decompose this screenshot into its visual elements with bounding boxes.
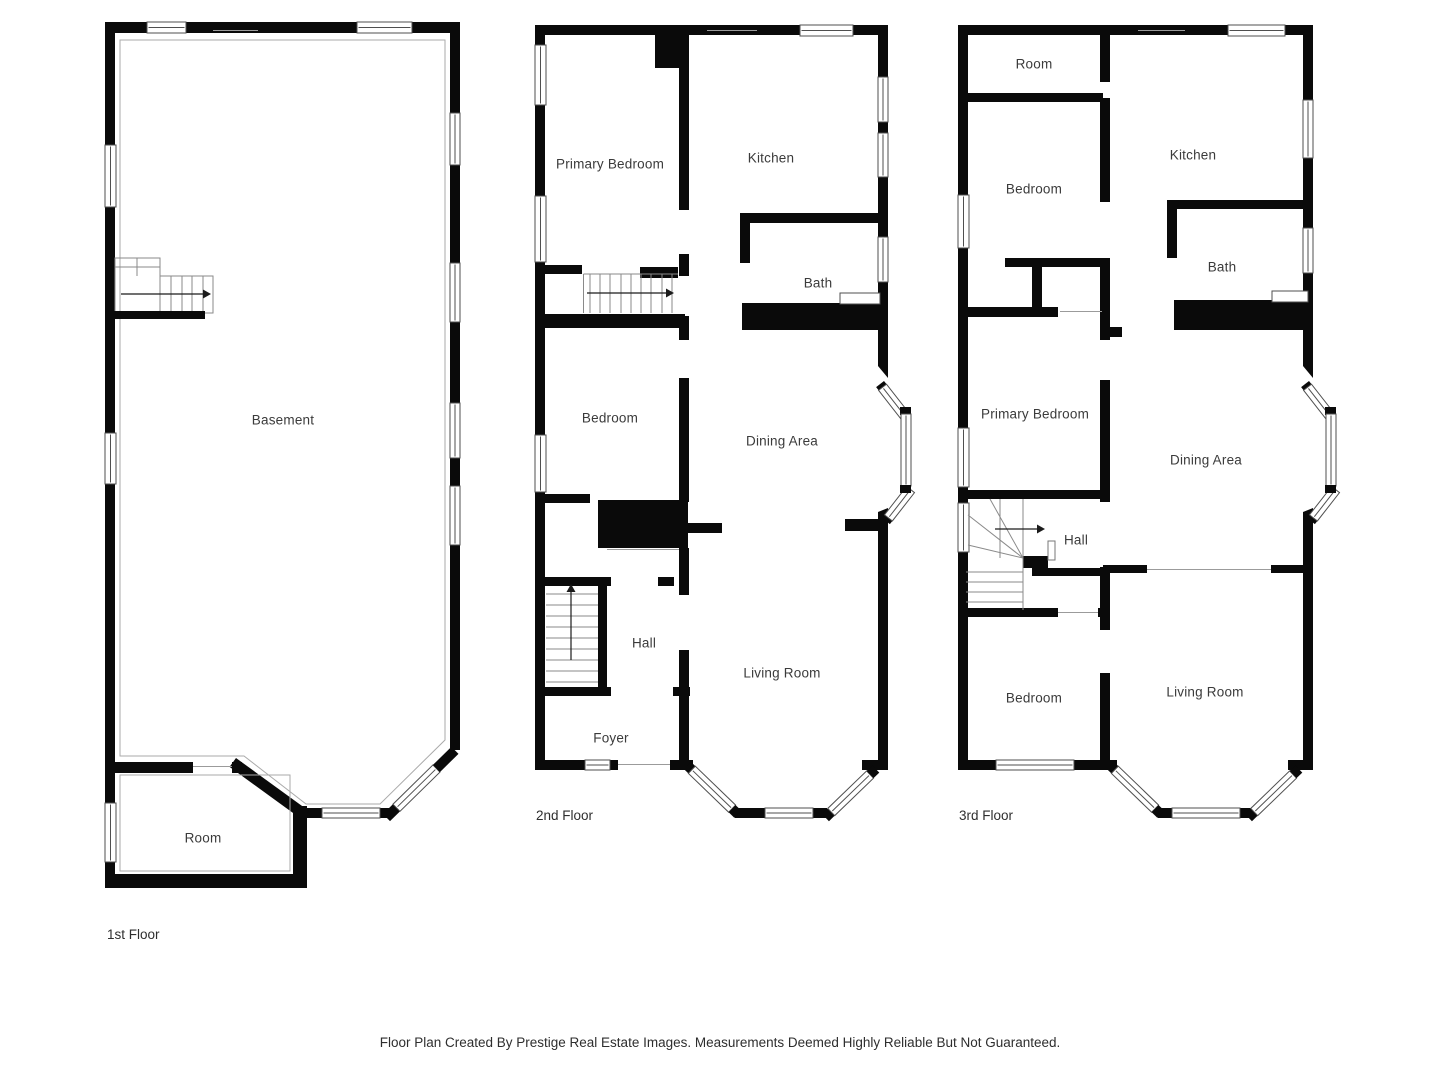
room-label-kitchen-3f: Kitchen bbox=[1170, 148, 1216, 163]
living-bay-left-window bbox=[684, 762, 741, 818]
disclaimer-text: Floor Plan Created By Prestige Real Esta… bbox=[0, 1035, 1440, 1050]
floor-1-linework bbox=[105, 22, 460, 888]
stairs-floor-2-up bbox=[584, 274, 679, 313]
living-bay-right-window-3 bbox=[1245, 765, 1302, 821]
bay-window-diagonal bbox=[383, 747, 458, 821]
room-label-bedroom-top-3f: Bedroom bbox=[1006, 182, 1062, 197]
room-label-living-room-3f: Living Room bbox=[1166, 685, 1243, 700]
room-label-hall-3f: Hall bbox=[1064, 533, 1088, 548]
room-label-dining-area-3f: Dining Area bbox=[1170, 453, 1242, 468]
room-label-bath-2f: Bath bbox=[804, 276, 833, 291]
stairs-floor-3 bbox=[966, 499, 1055, 610]
room-label-primary-bedroom-3f: Primary Bedroom bbox=[981, 407, 1089, 422]
windows-floor-1 bbox=[105, 22, 460, 862]
room-label-living-room-2f: Living Room bbox=[743, 666, 820, 681]
living-bay-right-window bbox=[822, 765, 879, 821]
floorplan-page: Basement Room 1st Floor Primary Bedroom … bbox=[0, 0, 1440, 1080]
floor-label-3rd: 3rd Floor bbox=[959, 808, 1013, 823]
room-label-basement: Basement bbox=[252, 413, 314, 428]
room-label-primary-bedroom-2f: Primary Bedroom bbox=[556, 157, 664, 172]
living-bay-left-window-3 bbox=[1107, 762, 1164, 818]
floor-label-1st: 1st Floor bbox=[107, 927, 160, 942]
stairs-floor-1 bbox=[105, 258, 213, 319]
room-label-dining-area-2f: Dining Area bbox=[746, 434, 818, 449]
room-label-kitchen-2f: Kitchen bbox=[748, 151, 794, 166]
room-label-foyer-2f: Foyer bbox=[593, 731, 629, 746]
room-label-room-3f: Room bbox=[1016, 57, 1053, 72]
room-label-bedroom-2f: Bedroom bbox=[582, 411, 638, 426]
room-label-hall-2f: Hall bbox=[632, 636, 656, 651]
room-label-bedroom-bottom-3f: Bedroom bbox=[1006, 691, 1062, 706]
stairs-floor-2-down bbox=[546, 584, 598, 682]
room-label-room-1f: Room bbox=[185, 831, 222, 846]
room-label-bath-3f: Bath bbox=[1208, 260, 1237, 275]
floorplan-drawing bbox=[0, 0, 1440, 1080]
floor-label-2nd: 2nd Floor bbox=[536, 808, 593, 823]
